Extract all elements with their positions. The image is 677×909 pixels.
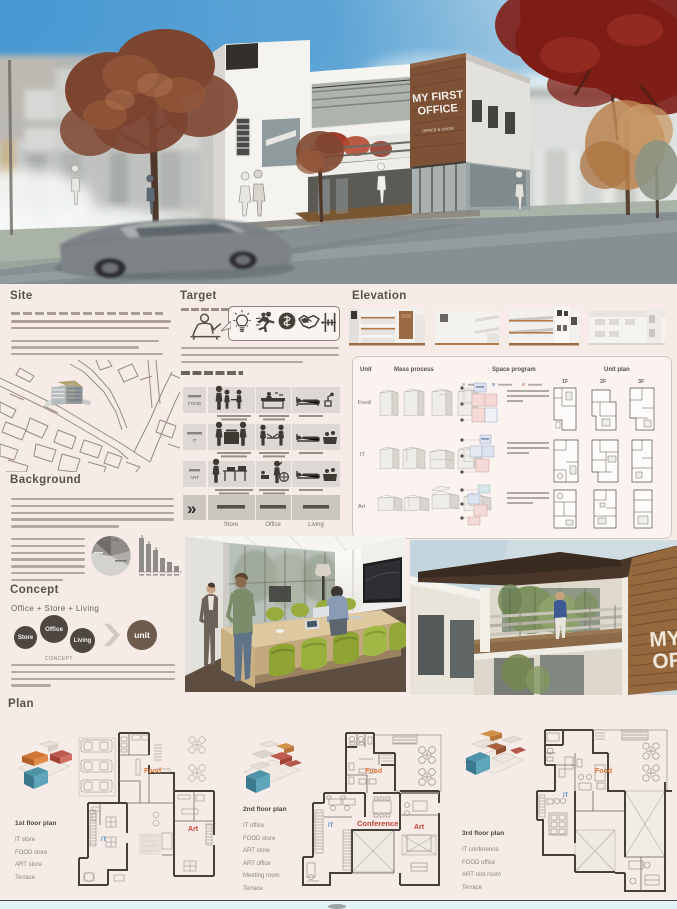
svg-text:Art: Art <box>358 504 366 510</box>
svg-text:Conference: Conference <box>357 819 398 828</box>
svg-text:Art: Art <box>414 824 425 831</box>
svg-text:IT: IT <box>360 452 366 458</box>
svg-text:IT: IT <box>328 823 334 829</box>
svg-text:Food: Food <box>144 768 161 775</box>
svg-text:1F: 1F <box>562 379 569 385</box>
svg-text:Mass process: Mass process <box>394 367 434 373</box>
svg-text:Store: Store <box>224 522 239 528</box>
svg-text:2F: 2F <box>600 379 607 385</box>
svg-text:Unit plan: Unit plan <box>604 367 630 373</box>
svg-text:»: » <box>187 499 196 518</box>
svg-text:Food: Food <box>595 768 612 775</box>
svg-text:Food: Food <box>365 768 382 775</box>
svg-text:Space program: Space program <box>492 367 536 373</box>
svg-text:Living: Living <box>308 522 324 528</box>
svg-text:IT: IT <box>563 793 569 799</box>
svg-text:3F: 3F <box>638 379 645 385</box>
svg-text:OF: OF <box>652 649 677 674</box>
svg-text:Unit: Unit <box>360 367 372 373</box>
svg-text:Art: Art <box>188 826 199 833</box>
svg-text:FOOD: FOOD <box>188 401 202 406</box>
svg-text:IT: IT <box>101 837 107 843</box>
svg-text:Food: Food <box>358 400 371 406</box>
svg-text:ART: ART <box>190 475 199 480</box>
svg-text:MY: MY <box>649 627 677 652</box>
svg-text:IT: IT <box>192 438 196 443</box>
svg-text:Office: Office <box>265 522 281 528</box>
